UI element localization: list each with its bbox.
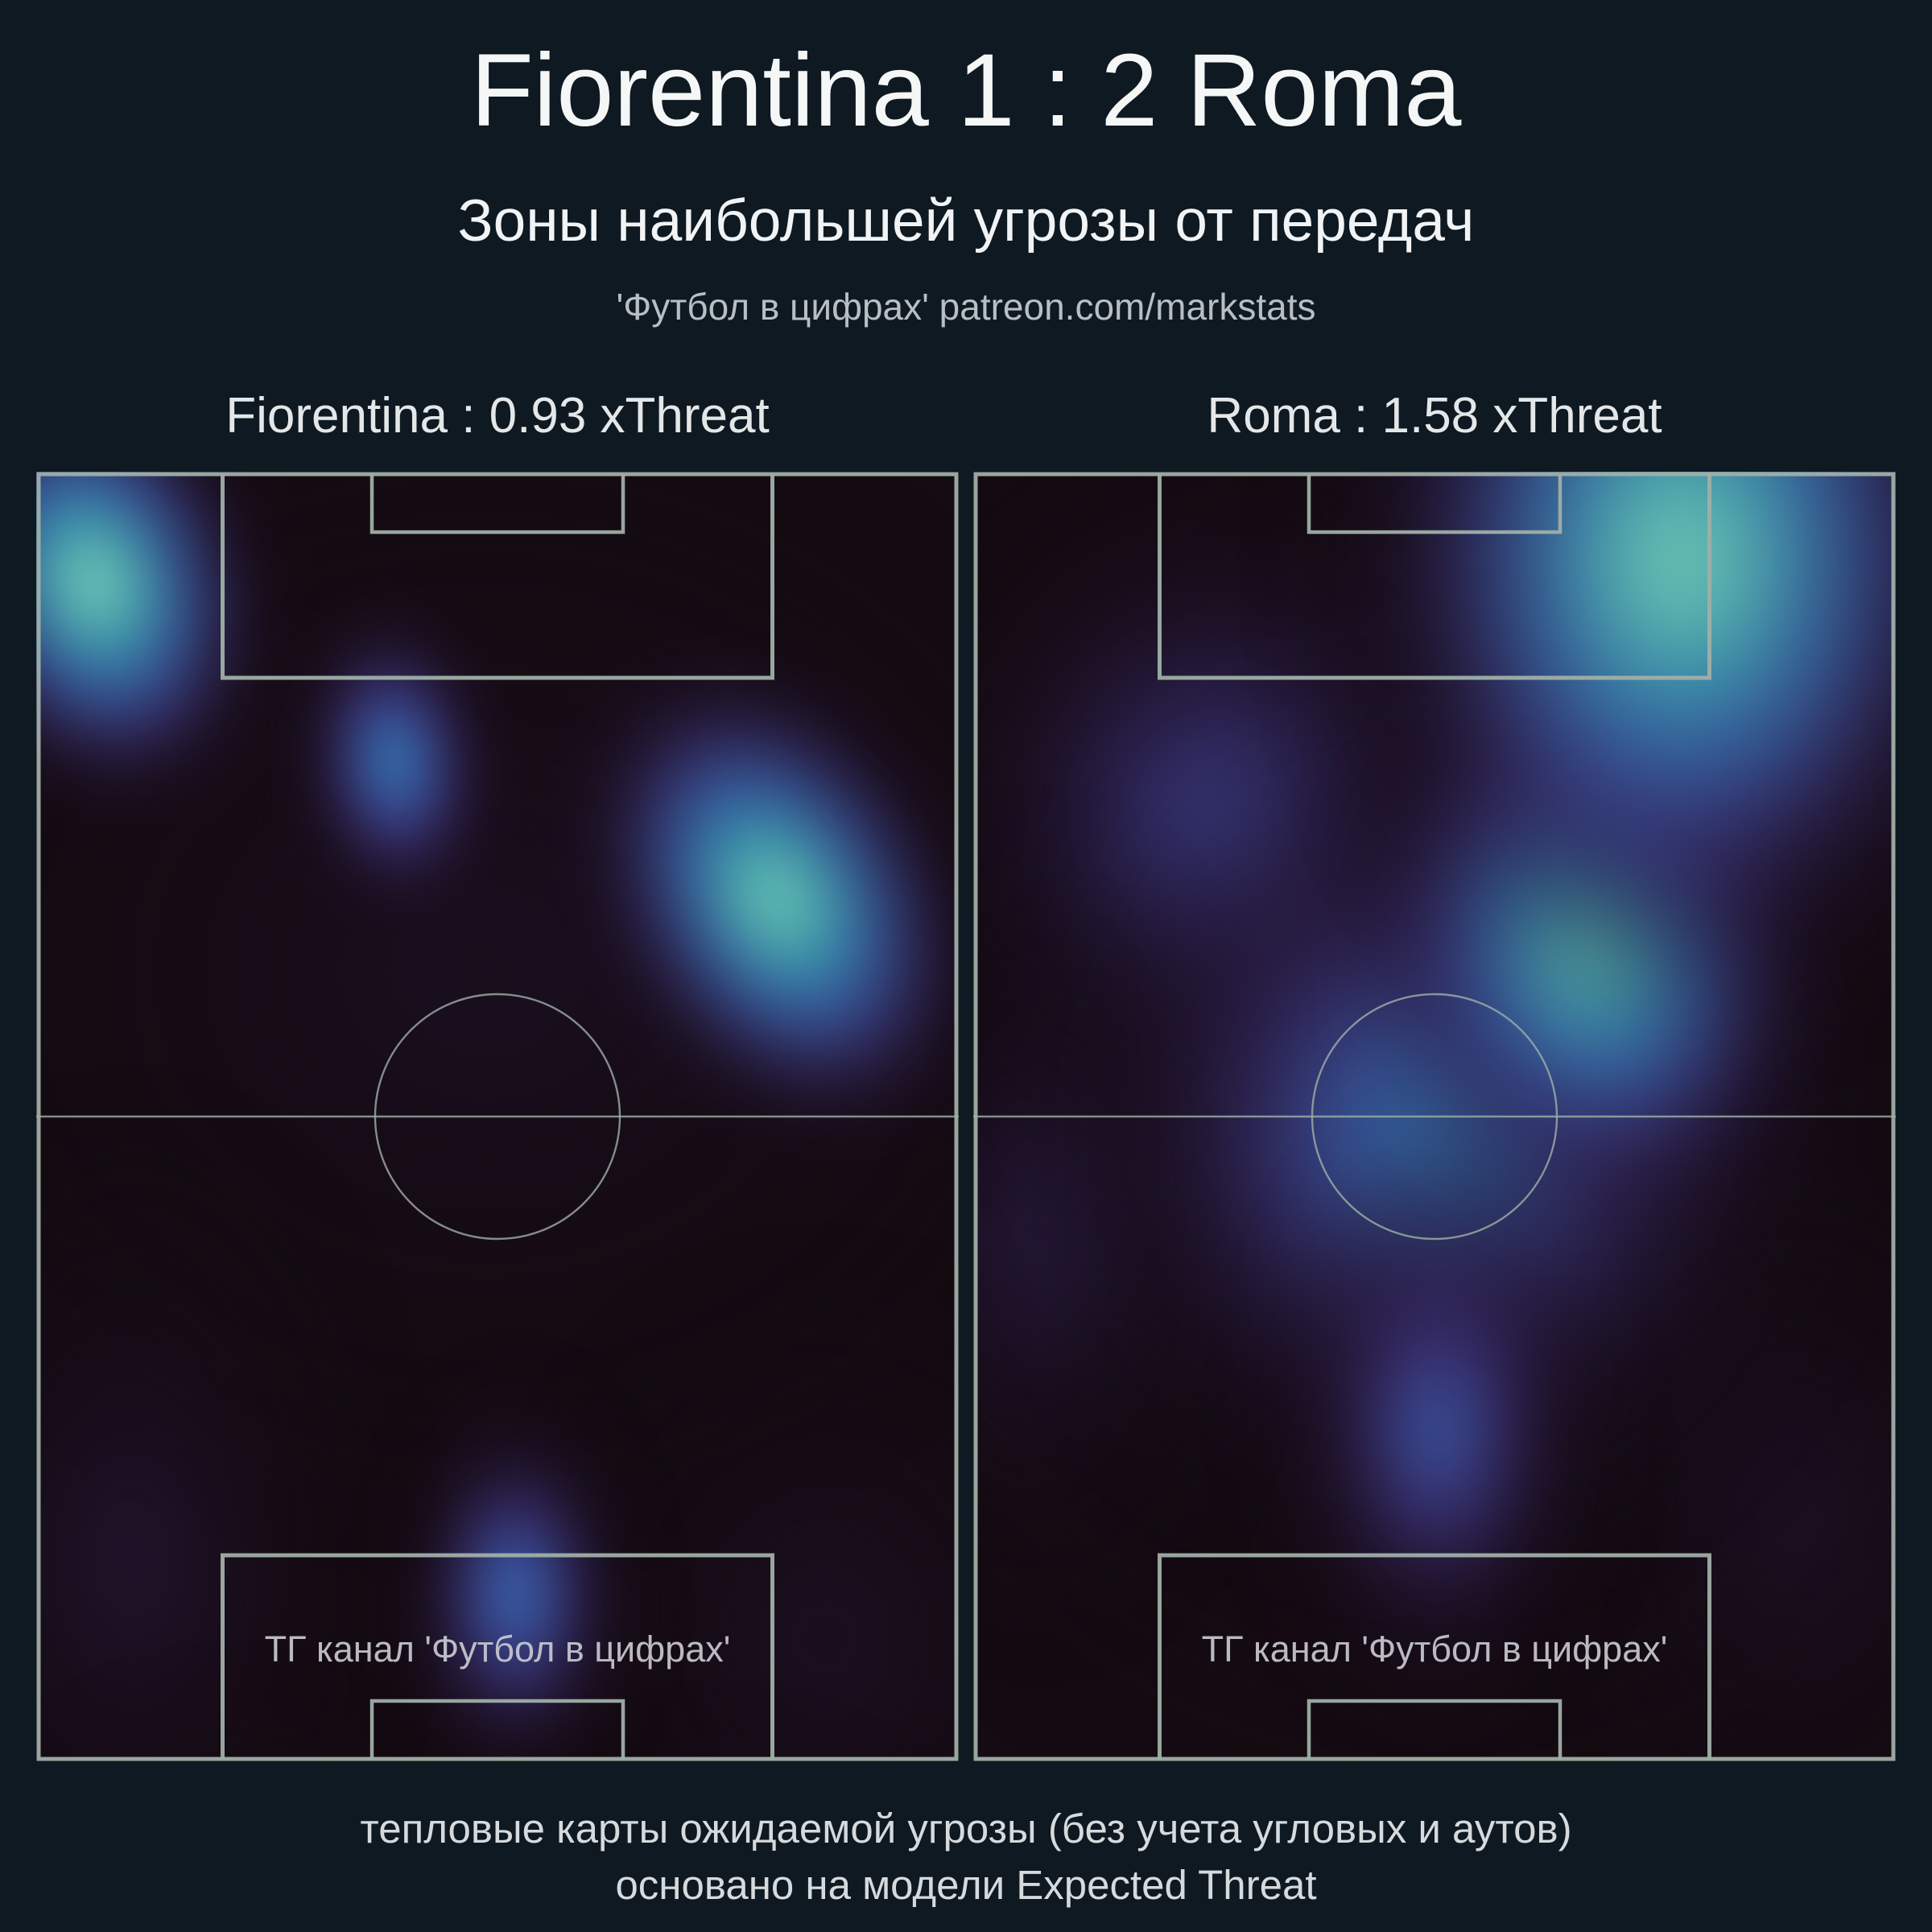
- watermark-roma: ТГ канал 'Футбол в цифрах': [973, 1626, 1896, 1673]
- match-infographic: Fiorentina 1 : 2 Roma Зоны наибольшей уг…: [0, 0, 1932, 1932]
- page-title: Fiorentina 1 : 2 Roma: [0, 27, 1932, 155]
- pitch-markings: [36, 472, 959, 1761]
- footer-note-2: основано на модели Expected Threat: [0, 1860, 1932, 1911]
- penalty-box-top: [223, 474, 773, 678]
- panel-title-roma: Roma : 1.58 xThreat: [973, 385, 1896, 448]
- penalty-box-top: [1160, 474, 1710, 678]
- six-yard-box-top: [1309, 474, 1560, 532]
- panel-title-fiorentina: Fiorentina : 0.93 xThreat: [36, 385, 959, 448]
- six-yard-box-bottom: [1309, 1701, 1560, 1759]
- footer-note-1: тепловые карты ожидаемой угрозы (без уче…: [0, 1803, 1932, 1855]
- six-yard-box-top: [372, 474, 623, 532]
- pitch-markings: [973, 472, 1896, 1761]
- six-yard-box-bottom: [372, 1701, 623, 1759]
- attribution: 'Футбол в цифрах' patreon.com/markstats: [0, 283, 1932, 330]
- pitch-fiorentina: ТГ канал 'Футбол в цифрах': [36, 472, 959, 1761]
- pitch-roma: ТГ канал 'Футбол в цифрах': [973, 472, 1896, 1761]
- page-subtitle: Зоны наибольшей угрозы от передач: [0, 185, 1932, 258]
- watermark-fiorentina: ТГ канал 'Футбол в цифрах': [36, 1626, 959, 1673]
